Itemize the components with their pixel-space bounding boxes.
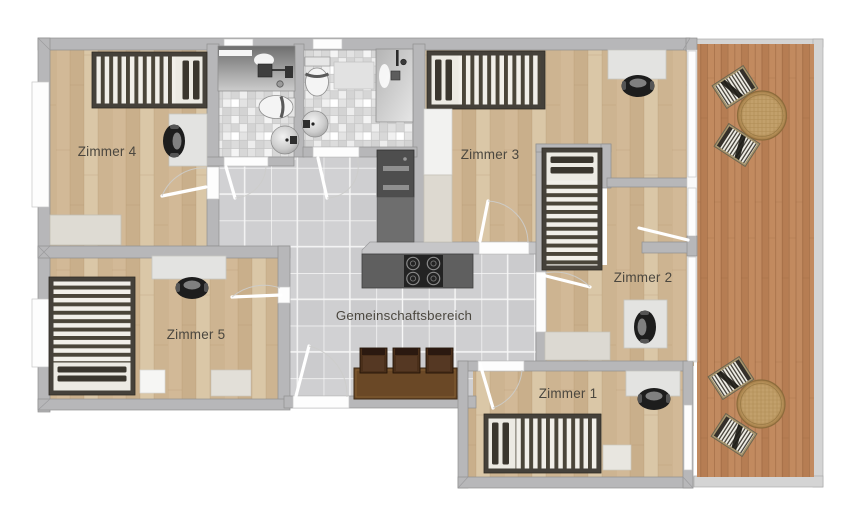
svg-text:Zimmer 2: Zimmer 2: [614, 270, 673, 285]
svg-text:Gemeinschaftsbereich: Gemeinschaftsbereich: [336, 308, 472, 323]
svg-text:Zimmer 5: Zimmer 5: [167, 327, 226, 342]
svg-text:Zimmer 1: Zimmer 1: [539, 386, 598, 401]
svg-text:Zimmer 3: Zimmer 3: [461, 147, 520, 162]
svg-text:Zimmer 4: Zimmer 4: [78, 144, 137, 159]
